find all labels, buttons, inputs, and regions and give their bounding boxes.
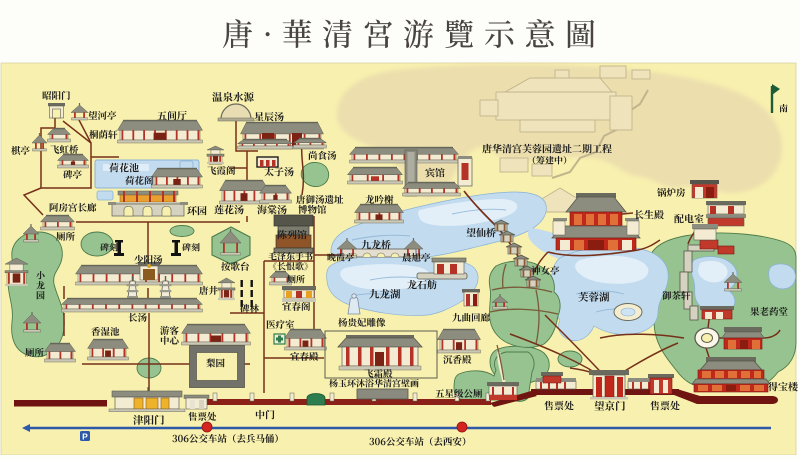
svg-text:P: P (82, 432, 88, 442)
